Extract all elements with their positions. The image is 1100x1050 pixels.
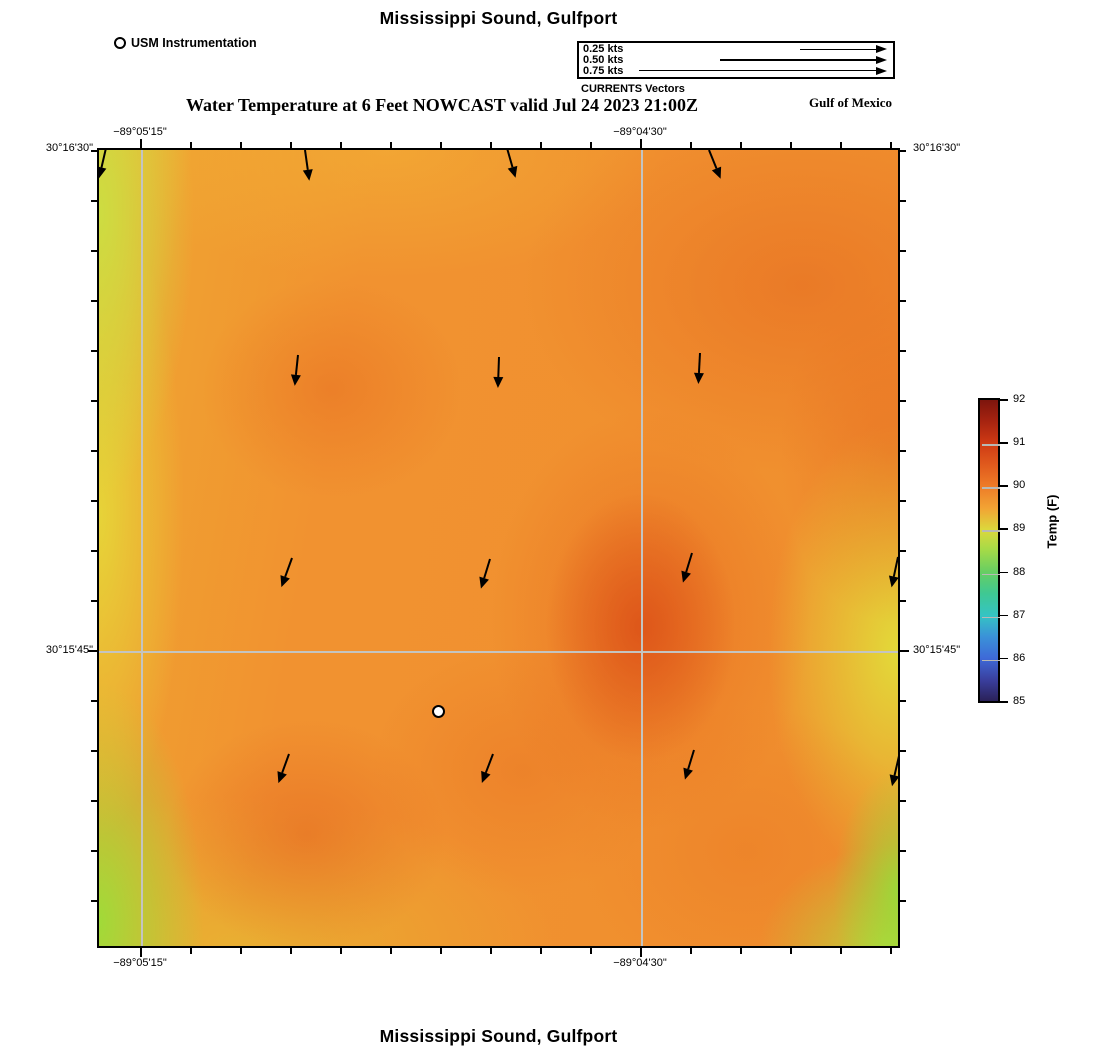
- colorbar-tick: [1000, 442, 1008, 444]
- colorbar-tick: [1000, 485, 1008, 487]
- map-tick: [840, 142, 842, 148]
- map-tick: [91, 150, 97, 152]
- map-tick: [91, 250, 97, 252]
- legend-label-025: 0.25 kts: [583, 44, 639, 54]
- lon-label-bottom-right: −89°04'30": [580, 957, 700, 969]
- colorbar: [978, 398, 1000, 703]
- map-tick: [240, 948, 242, 954]
- colorbar-tick-label: 86: [1013, 652, 1025, 664]
- currents-scale-legend: 0.25 kts 0.50 kts 0.75 kts: [577, 41, 895, 79]
- map-tick: [91, 500, 97, 502]
- currents-legend-caption: CURRENTS Vectors: [581, 83, 685, 95]
- colorbar-separator: [982, 530, 1000, 532]
- colorbar-tick: [1000, 701, 1008, 703]
- map-tick: [540, 142, 542, 148]
- map-tick: [900, 150, 906, 152]
- map-tick: [91, 300, 97, 302]
- current-vector-arrow-icon: [887, 556, 900, 588]
- bottom-title: Mississippi Sound, Gulfport: [97, 1026, 900, 1047]
- map-plot: [97, 148, 900, 948]
- colorbar-tick: [1000, 658, 1008, 660]
- map-tick: [190, 142, 192, 148]
- current-vector-arrow-icon: [300, 149, 314, 181]
- lon-label-top-right: −89°04'30": [580, 126, 700, 138]
- map-tick: [900, 450, 906, 452]
- map-tick: [900, 250, 906, 252]
- map-tick: [900, 700, 906, 702]
- colorbar-tick-label: 88: [1013, 566, 1025, 578]
- map-tick: [900, 900, 906, 902]
- colorbar-tick-label: 92: [1013, 393, 1025, 405]
- colorbar-separator: [982, 574, 1000, 576]
- map-tick: [390, 142, 392, 148]
- colorbar-tick-label: 89: [1013, 522, 1025, 534]
- current-vector-arrow-icon: [290, 354, 303, 386]
- map-tick: [91, 600, 97, 602]
- colorbar-area: 9291908988878685: [978, 398, 1078, 708]
- subtitle-valid-time: Water Temperature at 6 Feet NOWCAST vali…: [97, 95, 787, 116]
- lat-label-right-bottom: 30°15'45": [913, 644, 960, 656]
- legend-row-050: 0.50 kts: [583, 55, 889, 66]
- colorbar-separator: [982, 444, 1000, 446]
- map-tick: [590, 948, 592, 954]
- map-tick: [900, 550, 906, 552]
- colorbar-axis-label: Temp (F): [1045, 482, 1060, 562]
- map-tick: [640, 139, 642, 148]
- map-tick: [440, 142, 442, 148]
- legend-label-075: 0.75 kts: [583, 66, 639, 76]
- lon-label-bottom-left: −89°05'15": [80, 957, 200, 969]
- station-marker-icon: [432, 705, 445, 718]
- map-tick: [900, 600, 906, 602]
- map-tick: [900, 400, 906, 402]
- map-tick: [900, 650, 909, 652]
- lat-label-left-bottom: 30°15'45": [25, 644, 93, 656]
- legend-row-025: 0.25 kts: [583, 44, 889, 55]
- top-title: Mississippi Sound, Gulfport: [97, 8, 900, 29]
- map-tick: [690, 142, 692, 148]
- current-vector-arrow-icon: [887, 755, 900, 787]
- map-tick: [140, 139, 142, 148]
- map-tick: [790, 948, 792, 954]
- map-tick: [91, 800, 97, 802]
- colorbar-tick: [1000, 528, 1008, 530]
- map-tick: [91, 700, 97, 702]
- scale-arrow-075-icon: [639, 67, 887, 75]
- current-vector-arrow-icon: [97, 148, 111, 179]
- map-tick: [91, 550, 97, 552]
- current-vector-arrow-icon: [274, 752, 294, 785]
- instrumentation-legend: USM Instrumentation: [114, 36, 257, 50]
- map-tick: [390, 948, 392, 954]
- map-tick: [91, 900, 97, 902]
- colorbar-tick-label: 87: [1013, 609, 1025, 621]
- map-tick: [900, 500, 906, 502]
- map-tick: [340, 948, 342, 954]
- map-tick: [140, 948, 142, 957]
- map-tick: [240, 142, 242, 148]
- map-tick: [340, 142, 342, 148]
- current-vector-arrow-icon: [680, 749, 699, 782]
- map-tick: [590, 142, 592, 148]
- current-vector-arrow-icon: [502, 148, 520, 179]
- map-tick: [900, 300, 906, 302]
- map-tick: [690, 948, 692, 954]
- map-tick: [740, 948, 742, 954]
- legend-row-075: 0.75 kts: [583, 65, 889, 76]
- current-vector-arrow-icon: [678, 552, 697, 585]
- map-tick: [900, 350, 906, 352]
- map-tick: [290, 142, 292, 148]
- map-tick: [740, 142, 742, 148]
- page: { "titles": { "top": "Mississippi Sound,…: [0, 0, 1100, 1050]
- map-tick: [91, 750, 97, 752]
- colorbar-separator: [982, 617, 1000, 619]
- lat-label-right-top: 30°16'30": [913, 142, 960, 154]
- colorbar-tick: [1000, 572, 1008, 574]
- map-tick: [91, 200, 97, 202]
- map-tick: [890, 948, 892, 954]
- map-tick: [91, 850, 97, 852]
- current-vector-arrow-icon: [476, 558, 495, 591]
- current-vector-arrow-icon: [704, 148, 725, 180]
- colorbar-separator: [982, 487, 1000, 489]
- map-tick: [290, 948, 292, 954]
- map-tick: [900, 200, 906, 202]
- current-vector-arrow-icon: [693, 353, 705, 384]
- gridline-lat: [99, 651, 898, 653]
- lat-label-left-top: 30°16'30": [25, 142, 93, 154]
- map-tick: [640, 948, 642, 957]
- scale-arrow-050-icon: [720, 56, 887, 64]
- instrumentation-legend-label: USM Instrumentation: [131, 36, 257, 50]
- gulf-of-mexico-label: Gulf of Mexico: [809, 95, 892, 111]
- map-tick: [840, 948, 842, 954]
- colorbar-tick-label: 90: [1013, 479, 1025, 491]
- gridline-lon-right: [641, 150, 643, 946]
- station-circle-icon: [114, 37, 126, 49]
- map-frame: [97, 148, 900, 948]
- colorbar-tick: [1000, 399, 1008, 401]
- map-tick: [540, 948, 542, 954]
- colorbar-tick: [1000, 615, 1008, 617]
- map-tick: [440, 948, 442, 954]
- current-vector-arrow-icon: [477, 752, 497, 785]
- map-tick: [490, 142, 492, 148]
- map-tick: [490, 948, 492, 954]
- map-tick: [790, 142, 792, 148]
- map-tick: [900, 850, 906, 852]
- colorbar-separator: [982, 660, 1000, 662]
- current-vector-arrow-icon: [277, 556, 297, 589]
- map-tick: [890, 142, 892, 148]
- map-tick: [91, 400, 97, 402]
- map-tick: [91, 450, 97, 452]
- lon-label-top-left: −89°05'15": [80, 126, 200, 138]
- gridline-lon-left: [141, 150, 143, 946]
- map-tick: [91, 350, 97, 352]
- colorbar-tick-label: 91: [1013, 436, 1025, 448]
- map-tick: [900, 800, 906, 802]
- legend-label-050: 0.50 kts: [583, 55, 639, 65]
- scale-arrow-025-icon: [800, 45, 887, 53]
- map-tick: [88, 650, 97, 652]
- current-vector-arrow-icon: [493, 357, 504, 388]
- colorbar-tick-label: 85: [1013, 695, 1025, 707]
- map-tick: [190, 948, 192, 954]
- map-tick: [900, 750, 906, 752]
